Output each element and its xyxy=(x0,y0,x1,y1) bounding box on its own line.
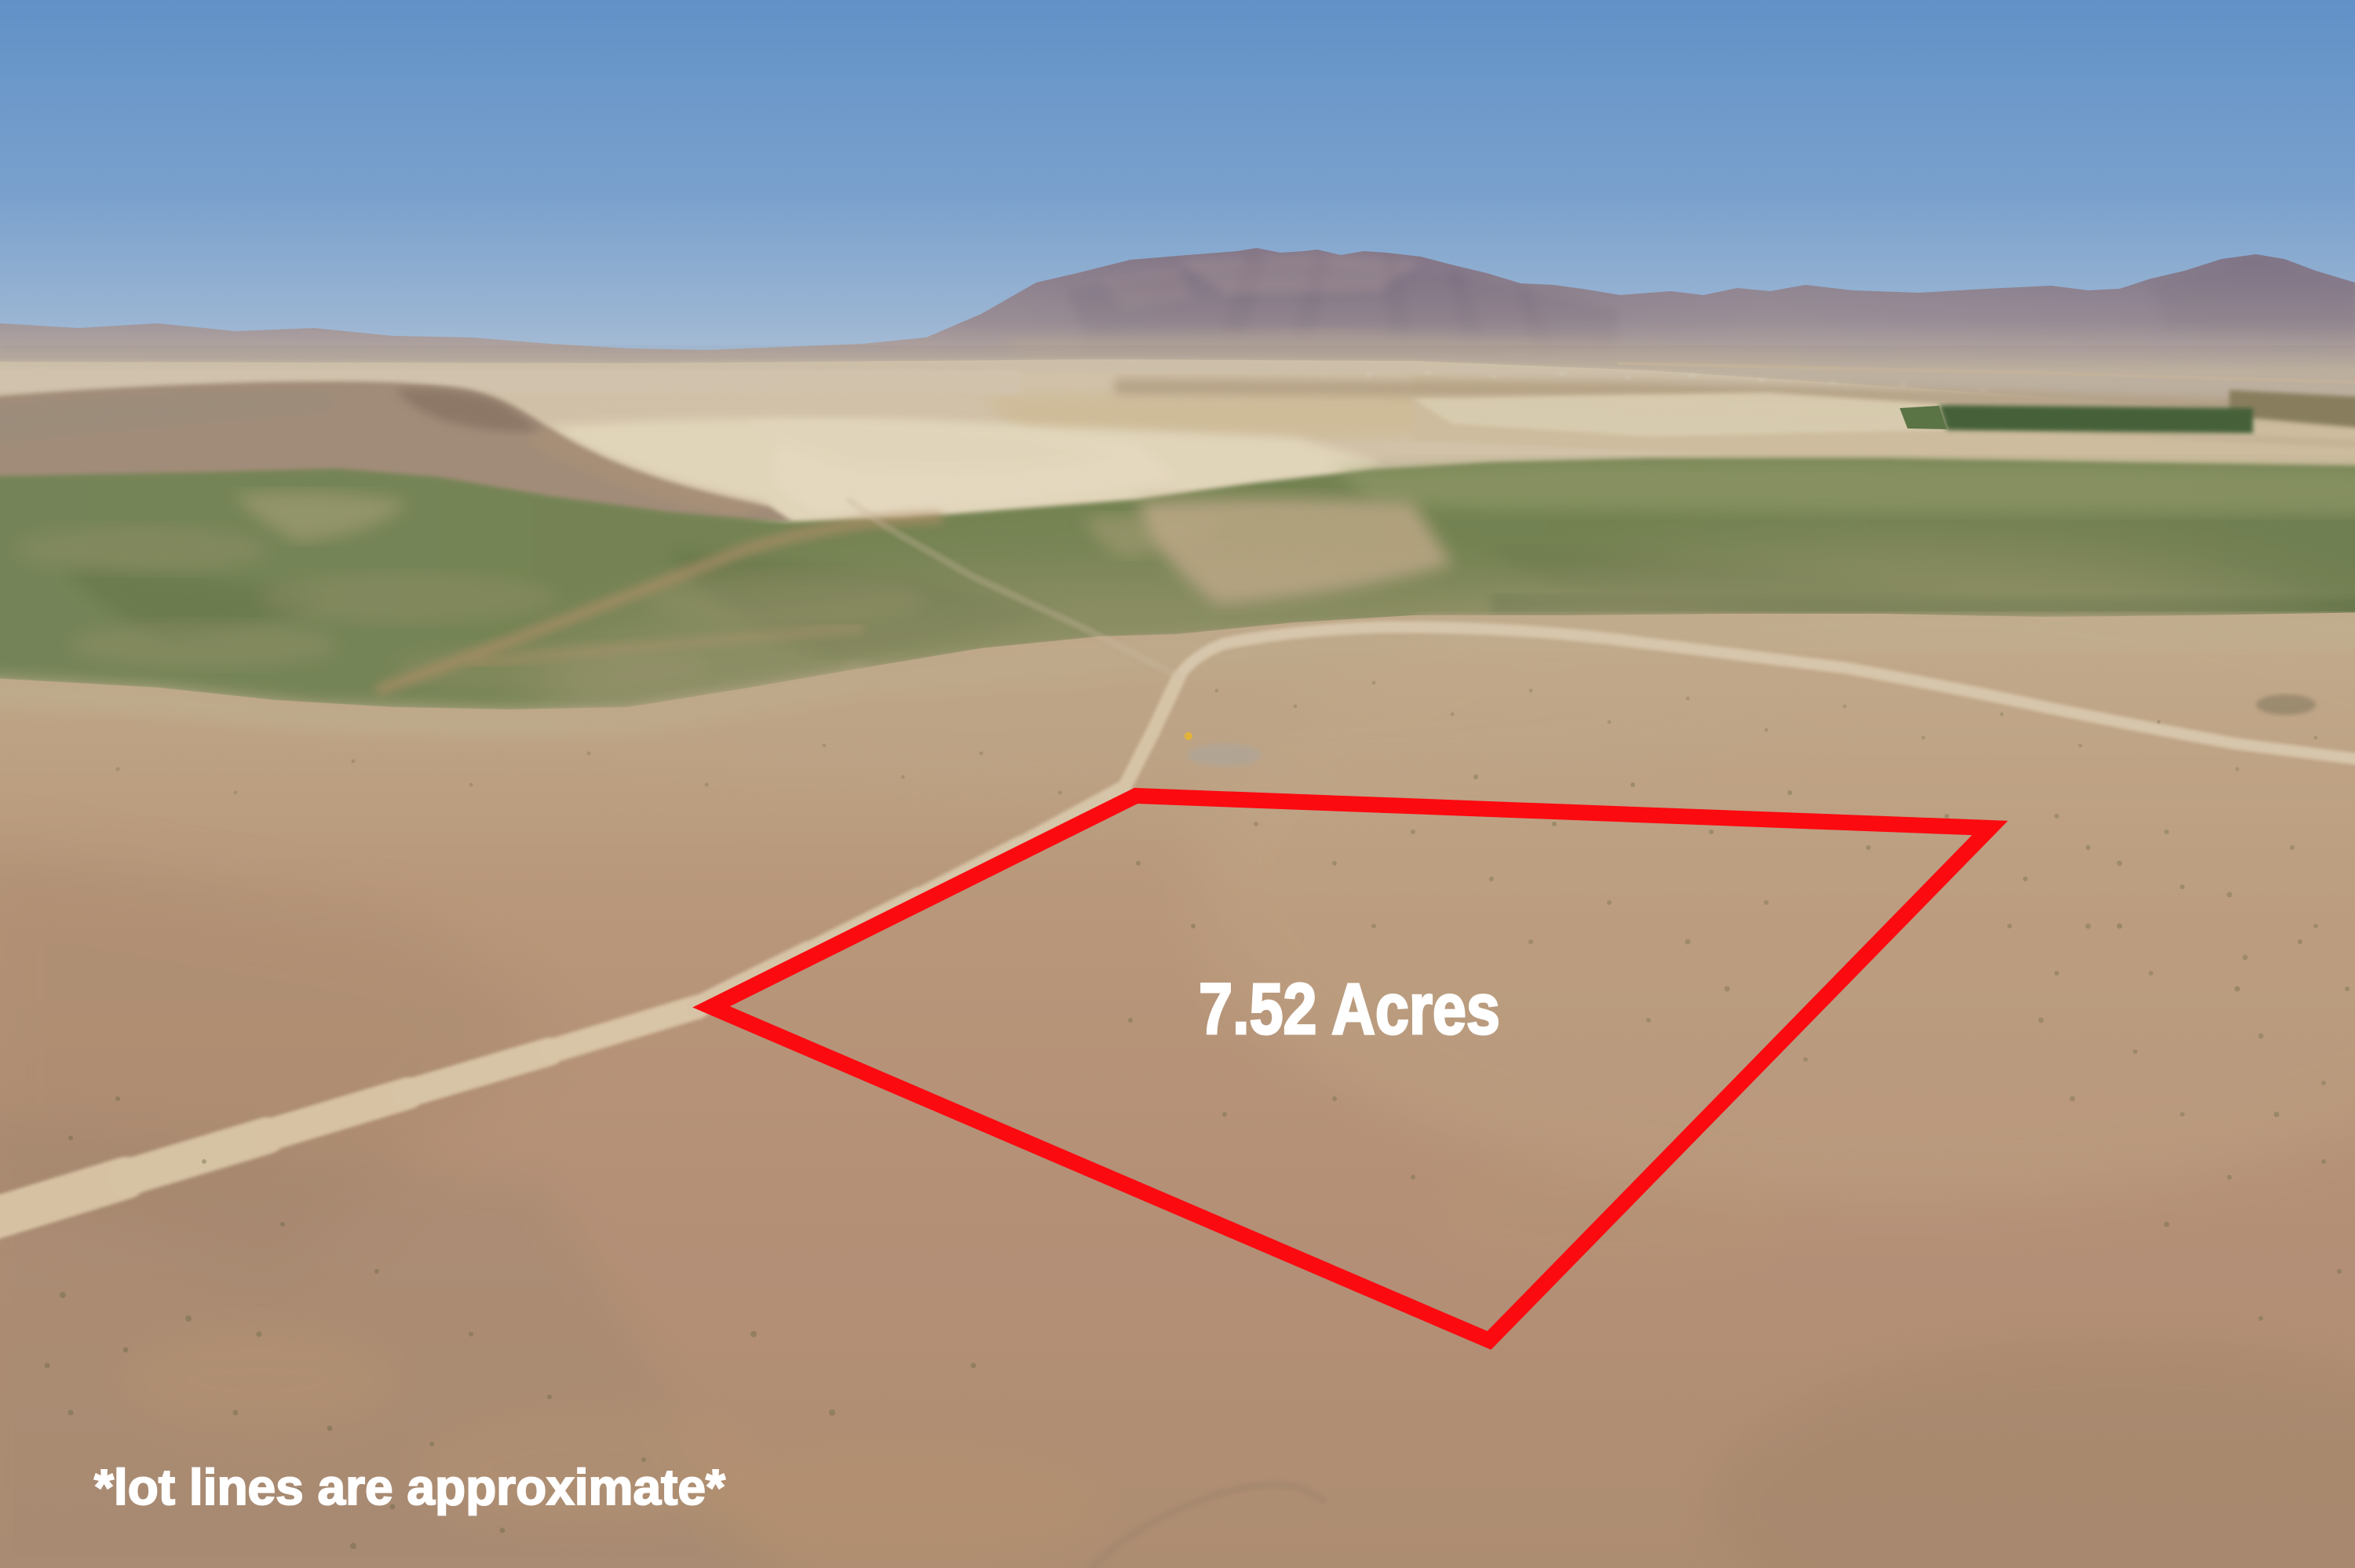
svg-text:*lot lines are approximate*: *lot lines are approximate* xyxy=(94,1459,725,1515)
svg-text:7.52 Acres: 7.52 Acres xyxy=(1199,969,1500,1050)
